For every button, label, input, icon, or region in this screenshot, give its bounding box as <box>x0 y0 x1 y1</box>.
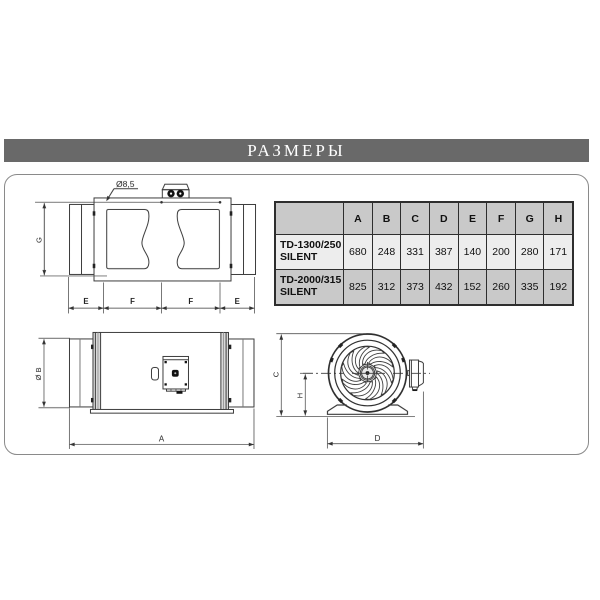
svg-text:E: E <box>83 297 88 306</box>
svg-text:D: D <box>375 434 381 443</box>
svg-text:A: A <box>159 434 165 443</box>
svg-text:Ø B: Ø B <box>34 367 43 380</box>
svg-text:F: F <box>130 297 135 306</box>
svg-text:H: H <box>295 393 304 398</box>
svg-text:C: C <box>271 371 280 377</box>
svg-text:F: F <box>188 297 193 306</box>
svg-text:Ø8,5: Ø8,5 <box>116 179 135 189</box>
svg-text:G: G <box>35 237 44 243</box>
svg-text:E: E <box>235 297 240 306</box>
